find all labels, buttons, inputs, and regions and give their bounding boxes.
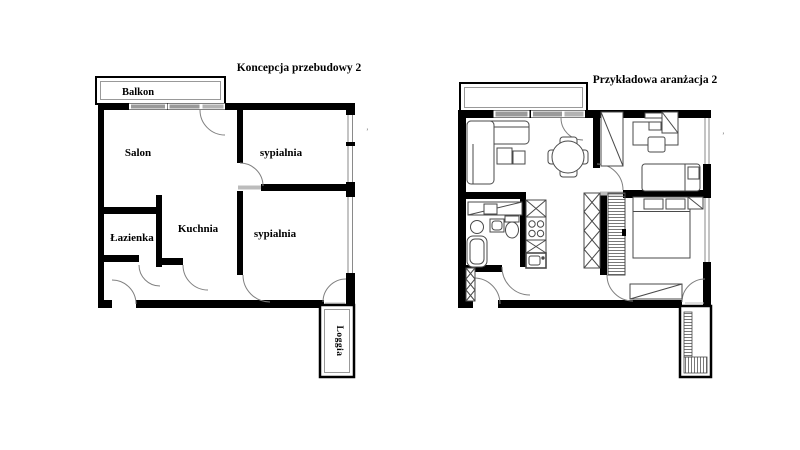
balcony-left: [96, 77, 225, 104]
label-lazienka: Łazienka: [110, 232, 154, 244]
bedroom2-door-arc-right: [607, 275, 633, 301]
side-table: [497, 148, 512, 164]
bench-chest: [630, 284, 682, 299]
entrance-door-arc-right: [474, 278, 500, 304]
label-salon: Salon: [125, 147, 151, 159]
bidet-square: [490, 219, 504, 232]
loggia-right: [680, 303, 711, 377]
top-wall-windows-left: [129, 104, 225, 110]
double-bed: [633, 197, 690, 258]
left-plan: Koncepcja przebudowy 2 Balkon Salon sypi…: [96, 62, 369, 377]
bedroom1-door-arc: [240, 163, 263, 186]
wardrobe-bedroom1: [601, 112, 623, 166]
kitchen-door-arc: [183, 265, 208, 290]
single-bed: [642, 164, 700, 191]
wardrobe-living: [584, 193, 600, 268]
left-plan-title: Koncepcja przebudowy 2: [237, 62, 362, 74]
floor-plan-document: Koncepcja przebudowy 2 Balkon Salon sypi…: [0, 0, 800, 450]
stove-hob: [526, 217, 546, 240]
loggia-decking: [684, 357, 707, 373]
kitchen-sink: [526, 253, 546, 268]
right-plan-title: Przykładowa aranżacja 2: [593, 74, 718, 86]
left-plan-interior-walls: [104, 103, 355, 275]
hall-cabinet: [466, 268, 475, 301]
loggia-bench: [684, 312, 692, 357]
kitchen-corner-cabinet: [526, 200, 546, 217]
toilet: [505, 216, 519, 238]
cabinet-with-diagonal: [662, 112, 678, 133]
bedroom2-door-arc: [243, 275, 270, 302]
sink-round: [471, 221, 484, 234]
desk-chair: [648, 137, 665, 152]
bedside-table: [688, 197, 703, 209]
label-sypialnia-bottom: sypialnia: [254, 228, 297, 240]
kitchen-fixtures: [526, 200, 546, 268]
balcony-right: [460, 83, 587, 112]
bedroom2-furniture: [608, 193, 703, 299]
kitchen-door-arc-right: [502, 267, 530, 295]
bedroom1-door-threshold: [238, 186, 261, 190]
left-plan-outer-walls: [98, 103, 355, 308]
bedroom1-door-arc-right: [597, 164, 623, 190]
stray-mark-left: ’: [366, 127, 369, 136]
label-loggia: Loggia: [334, 326, 344, 357]
balcony-door-arc: [200, 110, 225, 135]
loggia-door-arc: [323, 279, 346, 302]
entrance-door-arc: [112, 280, 136, 304]
desk-monitor: [649, 122, 661, 130]
right-plan: Przykładowa aranżacja 2 ’: [458, 74, 725, 377]
washbasin-counter: [468, 202, 522, 215]
bathroom-door-arc: [139, 265, 160, 286]
side-table-small: [513, 151, 525, 164]
wardrobe-bedroom2: [608, 193, 626, 275]
label-sypialnia-top: sypialnia: [260, 147, 303, 159]
loggia-door-arc-right: [682, 279, 705, 302]
bathroom-fixtures: [467, 202, 522, 267]
bedroom1-furniture: [601, 112, 700, 191]
kitchen-cabinet-small: [526, 240, 546, 253]
label-kuchnia: Kuchnia: [178, 223, 219, 235]
stray-mark-right: ’: [722, 131, 725, 140]
floor-plans-canvas: Koncepcja przebudowy 2 Balkon Salon sypi…: [0, 0, 800, 450]
bathtub: [467, 236, 487, 267]
top-wall-windows-right: [494, 111, 586, 118]
dining-table: [552, 141, 584, 173]
dining-table-set: [548, 137, 588, 177]
label-balkon: Balkon: [122, 87, 154, 98]
